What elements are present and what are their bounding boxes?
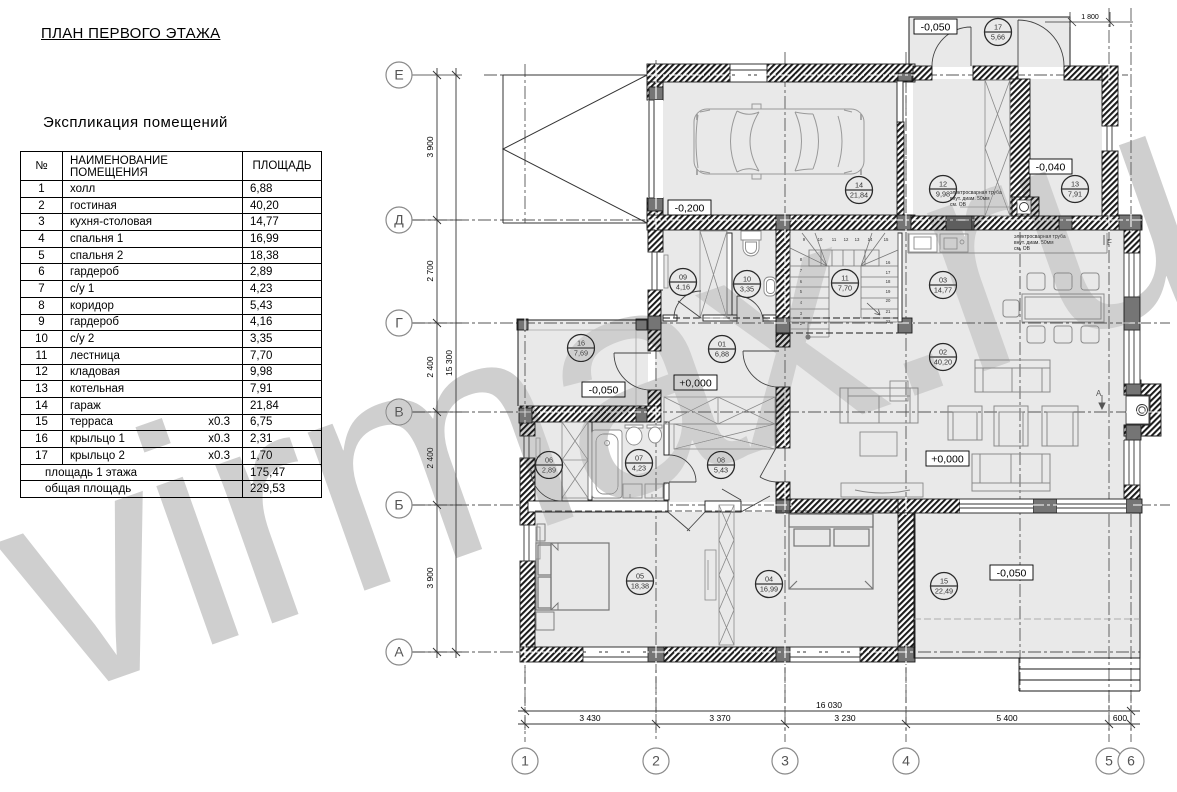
svg-text:+0,000: +0,000 <box>931 454 964 466</box>
svg-text:-0,200: -0,200 <box>675 203 705 215</box>
svg-text:Е: Е <box>394 67 403 83</box>
svg-text:22: 22 <box>886 319 891 324</box>
svg-text:5,66: 5,66 <box>991 33 1005 42</box>
svg-text:3 430: 3 430 <box>579 713 601 723</box>
svg-text:16 030: 16 030 <box>816 700 842 710</box>
svg-text:22,49: 22,49 <box>935 587 953 596</box>
svg-text:10: 10 <box>818 237 823 242</box>
svg-text:18: 18 <box>886 279 891 284</box>
svg-text:В: В <box>394 404 403 420</box>
svg-text:-0,050: -0,050 <box>997 568 1027 580</box>
svg-text:9,98: 9,98 <box>936 190 950 199</box>
svg-text:6: 6 <box>1127 753 1135 769</box>
svg-text:7,91: 7,91 <box>1068 190 1082 199</box>
svg-text:6,88: 6,88 <box>715 350 729 359</box>
svg-text:600: 600 <box>1113 713 1127 723</box>
svg-text:21: 21 <box>886 309 891 314</box>
svg-text:3 900: 3 900 <box>425 567 435 589</box>
svg-text:7,69: 7,69 <box>574 349 588 358</box>
svg-text:А: А <box>394 644 404 660</box>
svg-text:2: 2 <box>652 753 660 769</box>
svg-text:4,16: 4,16 <box>676 283 690 292</box>
svg-text:5,43: 5,43 <box>714 466 728 475</box>
svg-text:2 400: 2 400 <box>425 447 435 469</box>
svg-text:+0,000: +0,000 <box>679 378 712 390</box>
svg-text:1 800: 1 800 <box>1081 14 1099 21</box>
svg-text:16,99: 16,99 <box>760 585 778 594</box>
svg-text:16: 16 <box>577 339 585 348</box>
svg-text:06: 06 <box>545 456 553 465</box>
svg-text:-0,050: -0,050 <box>921 22 951 34</box>
svg-text:2,89: 2,89 <box>542 466 556 475</box>
svg-text:4,23: 4,23 <box>632 464 646 473</box>
svg-text:2 700: 2 700 <box>425 260 435 282</box>
svg-text:02: 02 <box>939 348 947 357</box>
svg-text:05: 05 <box>636 572 644 581</box>
svg-text:5 400: 5 400 <box>996 713 1018 723</box>
svg-text:13: 13 <box>855 237 860 242</box>
svg-text:03: 03 <box>939 276 947 285</box>
svg-text:14: 14 <box>855 181 863 190</box>
svg-text:Г: Г <box>395 315 403 331</box>
svg-text:10: 10 <box>743 275 751 284</box>
svg-text:11: 11 <box>832 237 837 242</box>
svg-text:-0,050: -0,050 <box>589 385 619 397</box>
svg-text:12: 12 <box>844 237 849 242</box>
svg-text:3 370: 3 370 <box>709 713 731 723</box>
svg-text:A: A <box>1096 389 1102 398</box>
svg-text:14: 14 <box>868 237 873 242</box>
svg-text:см. ОВ: см. ОВ <box>950 202 967 208</box>
svg-text:17: 17 <box>886 270 891 275</box>
svg-text:14,77: 14,77 <box>934 286 952 295</box>
svg-text:09: 09 <box>679 273 687 282</box>
svg-text:3 900: 3 900 <box>425 136 435 158</box>
svg-text:15 300: 15 300 <box>444 350 454 376</box>
svg-text:3,35: 3,35 <box>740 285 754 294</box>
svg-text:15: 15 <box>940 577 948 586</box>
svg-text:19: 19 <box>886 289 891 294</box>
svg-text:Д: Д <box>394 212 404 228</box>
svg-text:12: 12 <box>939 180 947 189</box>
svg-text:04: 04 <box>765 575 773 584</box>
svg-text:F: F <box>1107 238 1112 247</box>
svg-text:11: 11 <box>841 274 849 283</box>
svg-text:4: 4 <box>902 753 910 769</box>
svg-text:13: 13 <box>1071 180 1079 189</box>
svg-text:01: 01 <box>718 340 726 349</box>
svg-text:40,20: 40,20 <box>934 358 952 367</box>
svg-text:17: 17 <box>994 23 1002 32</box>
svg-text:Б: Б <box>394 497 403 513</box>
svg-text:2 400: 2 400 <box>425 356 435 378</box>
svg-text:см. ОВ: см. ОВ <box>1014 246 1031 252</box>
svg-text:-0,040: -0,040 <box>1036 162 1066 174</box>
svg-text:7,70: 7,70 <box>838 284 852 293</box>
svg-text:1: 1 <box>521 753 529 769</box>
svg-text:18,38: 18,38 <box>631 582 649 591</box>
svg-text:20: 20 <box>886 298 891 303</box>
svg-text:16: 16 <box>886 260 891 265</box>
svg-text:08: 08 <box>717 456 725 465</box>
svg-text:5: 5 <box>1105 753 1113 769</box>
svg-text:3 230: 3 230 <box>834 713 856 723</box>
svg-text:21,84: 21,84 <box>850 191 868 200</box>
svg-text:15: 15 <box>884 237 889 242</box>
svg-text:07: 07 <box>635 454 643 463</box>
svg-text:3: 3 <box>781 753 789 769</box>
